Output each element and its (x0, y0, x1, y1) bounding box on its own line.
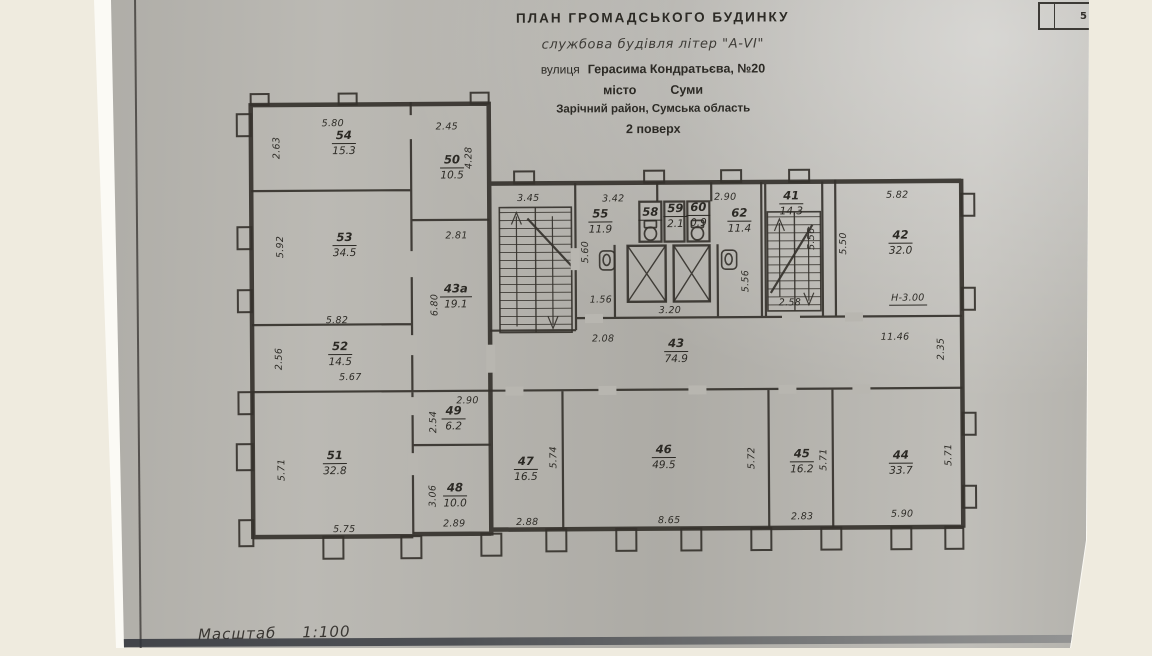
toilet-icon (691, 220, 703, 240)
sink-icon (600, 251, 615, 270)
toilet-icon (644, 221, 656, 241)
door-opening (406, 112, 871, 475)
document-page: 5 ПЛАН ГРОМАДСЬКОГО БУДИНКУ службова буд… (0, 0, 1152, 648)
sink-icon (722, 250, 737, 269)
staircase-icon (767, 212, 821, 311)
staircase-icon (499, 207, 572, 332)
floor-plan-drawing (0, 0, 1152, 652)
floor-plan: 5415.35010.55334.543а19.15214.55511.9585… (0, 0, 1152, 652)
elevator-shaft-icon (674, 245, 710, 301)
elevator-shaft-icon (628, 246, 666, 302)
scan-background: 5 ПЛАН ГРОМАДСЬКОГО БУДИНКУ службова буд… (0, 0, 1152, 648)
